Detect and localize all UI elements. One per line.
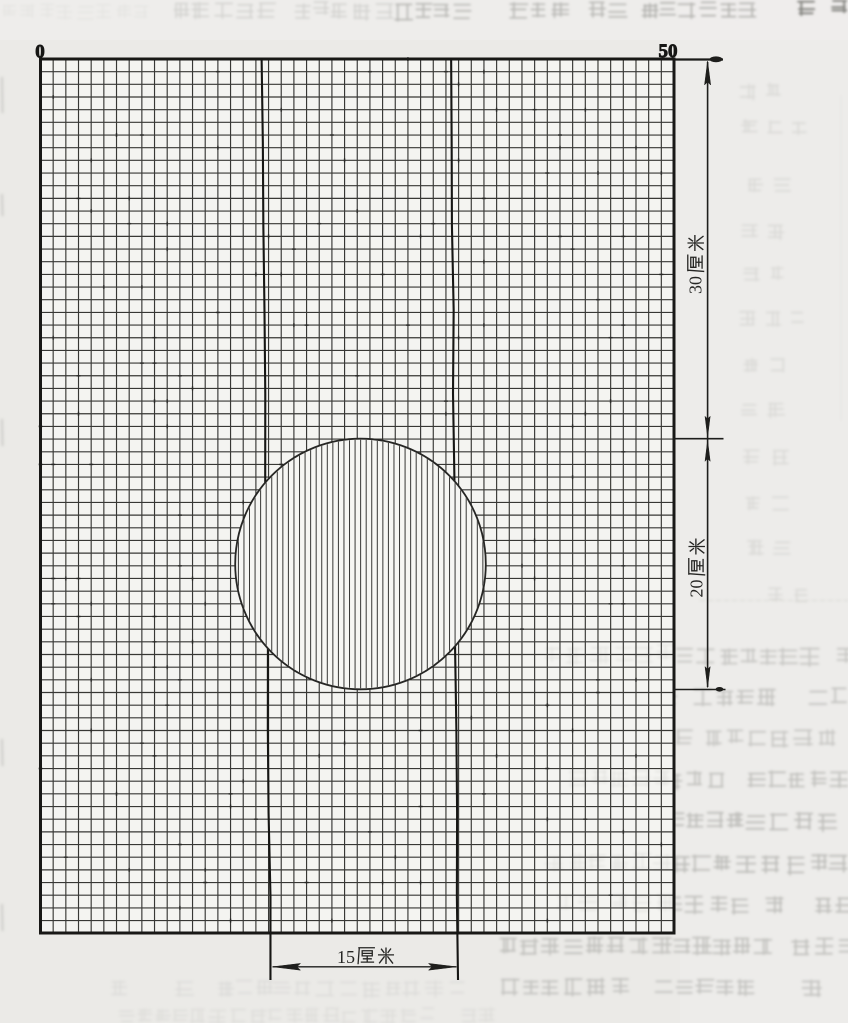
svg-text:30: 30 (686, 276, 706, 294)
svg-text:0: 0 (35, 42, 45, 63)
svg-text:20: 20 (687, 580, 707, 598)
svg-text:15: 15 (337, 947, 355, 967)
svg-text:50: 50 (659, 41, 678, 62)
